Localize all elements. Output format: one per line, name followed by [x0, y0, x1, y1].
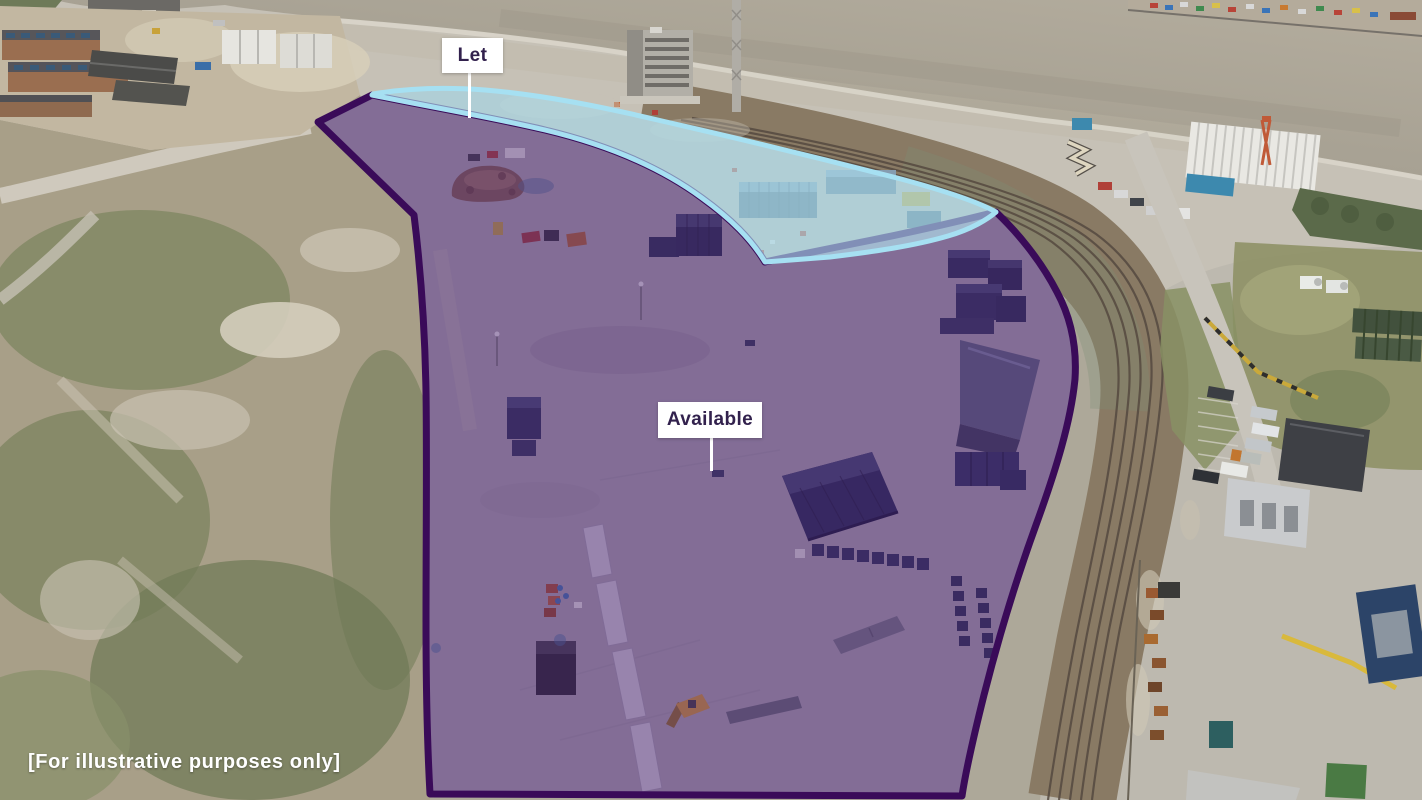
aerial-photograph — [0, 0, 1422, 800]
let-label-leader-line — [468, 72, 471, 118]
available-label: Available — [658, 402, 762, 438]
brownfield-land — [0, 95, 440, 800]
aerial-site-photo: Let Available [For illustrative purposes… — [0, 0, 1422, 800]
available-label-text: Available — [667, 409, 753, 431]
let-label-text: Let — [458, 45, 488, 67]
let-label: Let — [442, 38, 503, 73]
disclaimer-text: [For illustrative purposes only] — [28, 751, 341, 774]
available-label-leader-line — [710, 437, 713, 471]
